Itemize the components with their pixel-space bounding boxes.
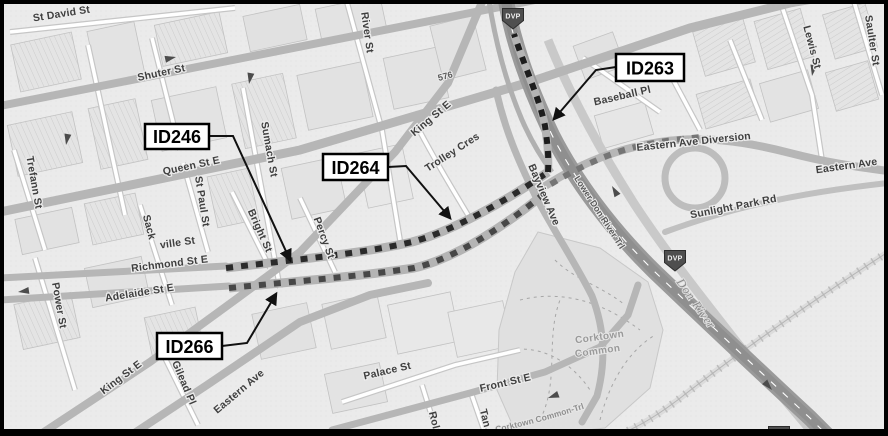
callout-id263-label: ID263 <box>626 59 674 79</box>
callout-id246: ID246 <box>145 124 209 149</box>
callout-id266-label: ID266 <box>165 337 213 357</box>
callout-id264-label: ID264 <box>331 158 379 178</box>
callout-id266: ID266 <box>157 333 222 359</box>
map-figure: St David St Shuter St River St 576 Trefa… <box>0 0 888 436</box>
callout-id246-label: ID246 <box>153 127 201 147</box>
dvp-shield-text: DVP <box>667 256 682 263</box>
dvp-shield-text: DVP <box>505 14 520 21</box>
map-canvas: St David St Shuter St River St 576 Trefa… <box>0 0 888 436</box>
callout-id264: ID264 <box>323 154 388 180</box>
callout-id263: ID263 <box>616 54 684 81</box>
